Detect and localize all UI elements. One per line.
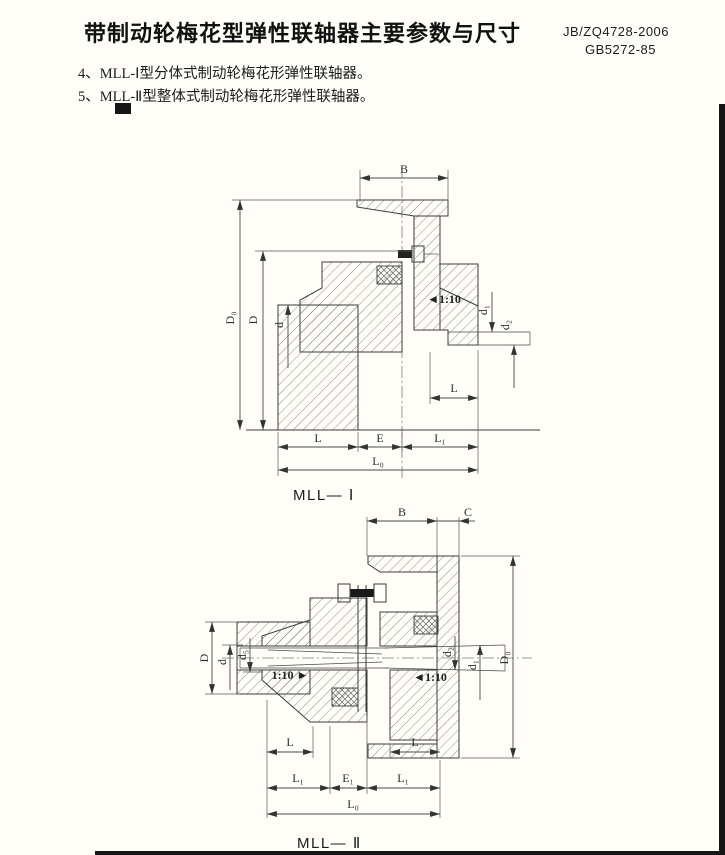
dim-label-lright-2: L (411, 735, 418, 749)
scan-edge-bottom (95, 851, 725, 855)
taper-label-1: ◄1:10 (427, 292, 461, 306)
scan-edge-right (719, 104, 725, 855)
taper-label-left-2: 1:10 ► (272, 668, 309, 682)
dim-label-b1: B (400, 162, 408, 176)
dim-label-dd-1: D (246, 315, 260, 324)
dim-label-d1-1: d₁ (476, 305, 490, 315)
elastomer-spider (377, 266, 402, 284)
bolt-icon (350, 589, 374, 597)
scan-artifact-blob (115, 103, 131, 114)
standard-code-1: JB/ZQ4728-2006 (563, 24, 669, 39)
dim-label-d2-2: d₂ (440, 647, 454, 657)
dim-label-d1-2: d₁ (465, 660, 479, 670)
dim-label-e-1: E (376, 431, 383, 445)
dim-label-d5-2: d₅ (235, 650, 249, 660)
dim-label-l0-1: L₀ (372, 454, 384, 468)
dim-label-dd-2: D (197, 653, 211, 662)
dim-label-d0-2: D₀ (497, 652, 511, 665)
dim-label-l1-1: L₁ (434, 431, 446, 445)
left-hub-section-2 (237, 598, 388, 722)
figure1-caption: MLL— Ⅰ (293, 486, 355, 504)
dim-label-d0-1: D₀ (223, 312, 237, 325)
dim-label-d-1: d (272, 322, 286, 328)
dim-label-e1-2: E₁ (342, 771, 354, 785)
dim-label-c2: C (464, 505, 472, 519)
elastomer-spider-lower (332, 688, 358, 706)
dim-label-l0-2: L₀ (347, 797, 359, 811)
catalog-page: 带制动轮梅花型弹性联轴器主要参数与尺寸 JB/ZQ4728-2006 GB527… (0, 0, 725, 855)
left-hub-section-1 (278, 262, 402, 430)
dim-label-l1left-2: L₁ (292, 771, 304, 785)
dim-label-lsmall-1: L (450, 381, 457, 395)
figure2-caption: MLL— Ⅱ (297, 834, 362, 852)
figure-mll-1-drawing: B D₀ D d ◄1:10 d₁ d₂ L (213, 155, 543, 515)
dim-label-l1right-2: L₁ (397, 771, 409, 785)
dim-label-b2: B (398, 505, 406, 519)
dim-label-l-1: L (314, 431, 321, 445)
dim-label-d2-1: d₂ (498, 320, 512, 330)
taper-label-right-2: ◄1:10 (413, 670, 447, 684)
note-item-4: 4、MLL-Ⅰ型分体式制动轮梅花形弹性联轴器。 (78, 62, 371, 83)
figure-mll-2-drawing: B C D₀ D d d₅ 1:10 ► ◄1:10 d₂ (195, 505, 545, 837)
page-title: 带制动轮梅花型弹性联轴器主要参数与尺寸 (84, 16, 544, 48)
dim-label-lleft-2: L (286, 735, 293, 749)
standard-code-2: GB5272-85 (585, 42, 656, 57)
dim-label-d-2: d (215, 659, 229, 665)
